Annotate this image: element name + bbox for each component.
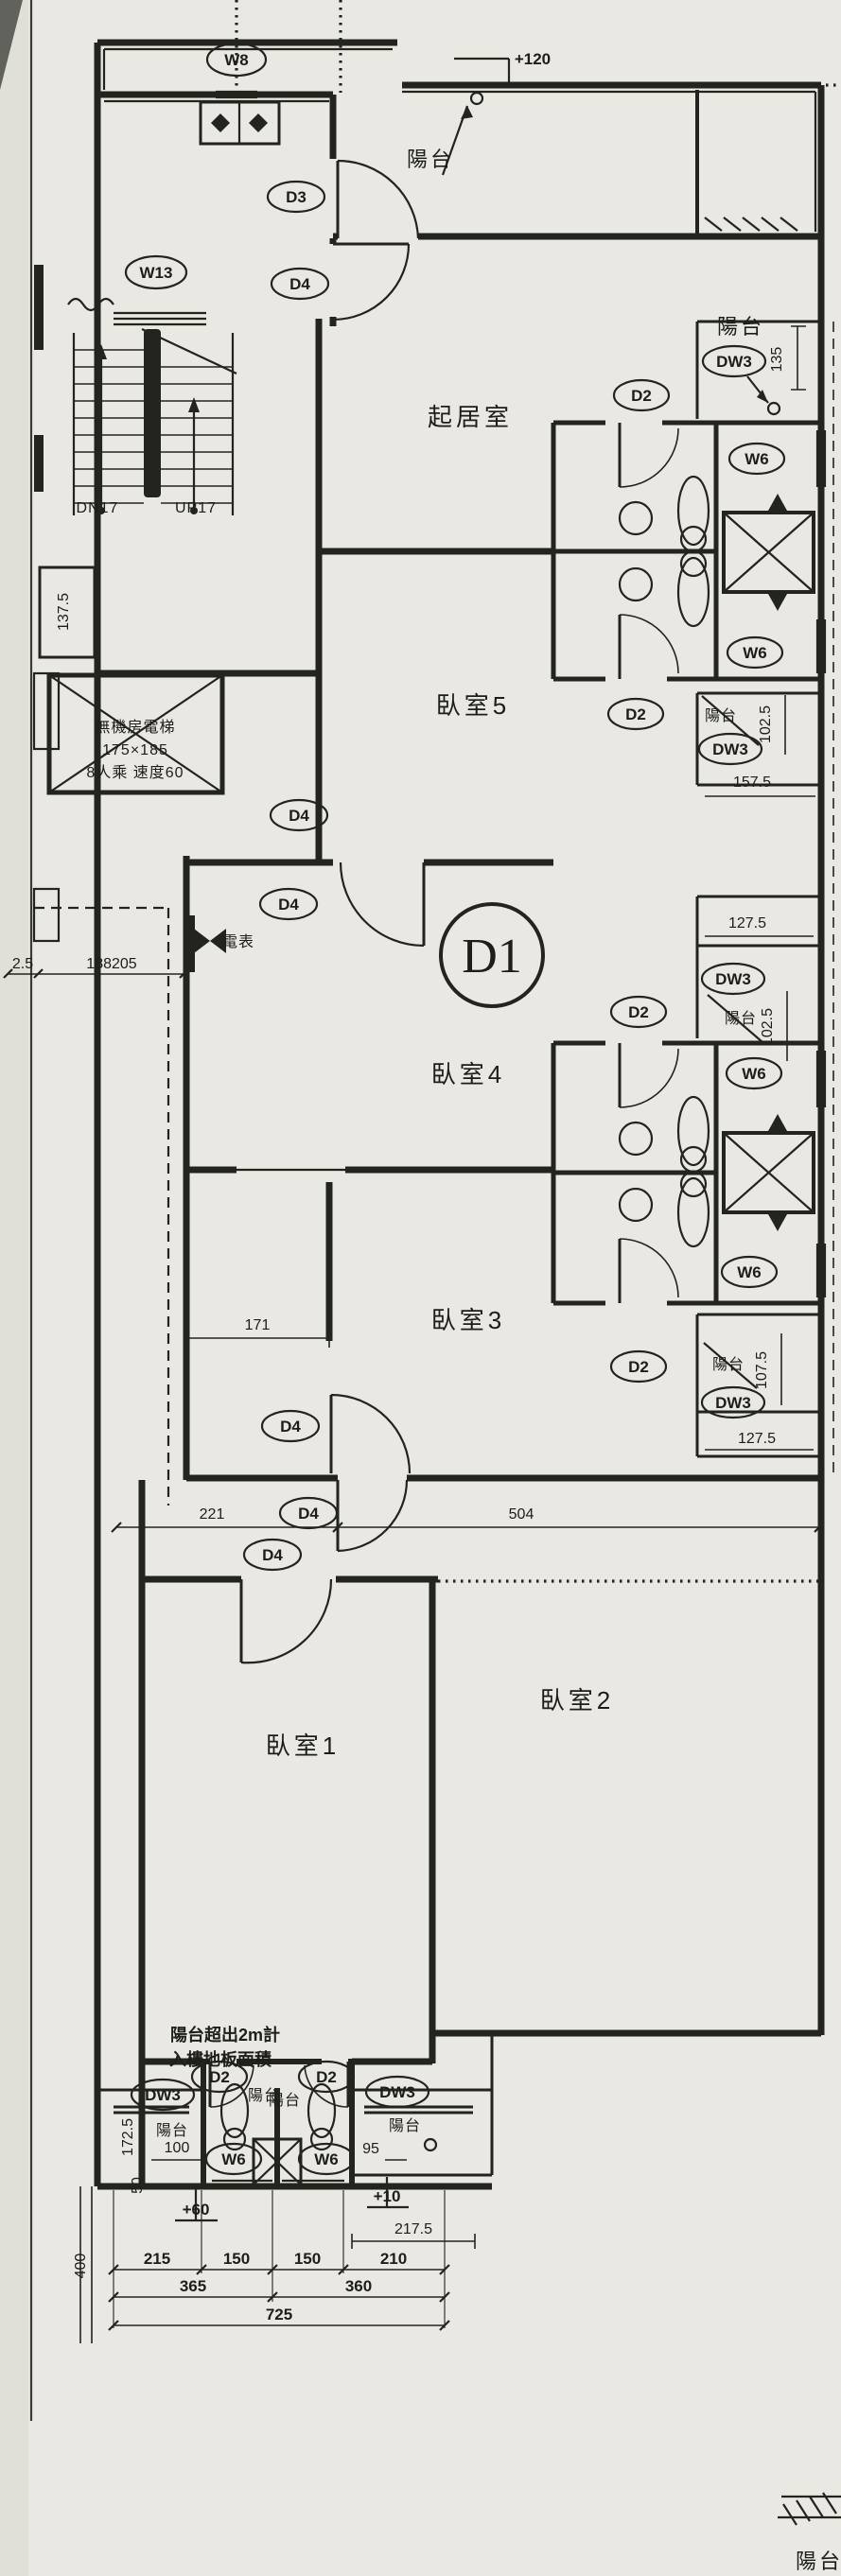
wall-mark: [34, 265, 44, 350]
svg-text:DW3: DW3: [712, 740, 748, 758]
dim-725: 725: [266, 2306, 292, 2324]
dim-365: 365: [180, 2277, 206, 2295]
label-bed4: 臥室4: [431, 1060, 505, 1088]
dim-360: 360: [345, 2277, 372, 2295]
dim-504: 504: [509, 1506, 534, 1523]
svg-text:D2: D2: [631, 387, 652, 405]
paper-left-margin: [0, 0, 28, 2576]
level-top: +120: [515, 50, 551, 68]
stair-rail: [144, 329, 161, 497]
dim-102-5-b2: 102.5: [758, 705, 774, 743]
note-line2: 入樓地板面積: [169, 2049, 272, 2069]
elevator-line2: 175×185: [102, 742, 168, 758]
floorplan-page: W8 D3 D4 W13 D2 DW3 W6 W6 D2 DW3 D4 D4 D…: [0, 0, 841, 2576]
label-balcony-1: 陽台: [717, 315, 764, 339]
dim-215: 215: [144, 2250, 170, 2268]
svg-text:W13: W13: [140, 264, 173, 282]
svg-text:W6: W6: [737, 1263, 762, 1281]
dim-127-5-b: 127.5: [738, 1431, 776, 1447]
level-left: +60: [183, 2201, 210, 2219]
label-stair-down: DN17: [77, 500, 119, 516]
svg-text:D4: D4: [262, 1546, 283, 1564]
label-bed5: 臥室5: [436, 691, 510, 720]
dim-107-5: 107.5: [754, 1351, 770, 1389]
elevator-line1: 無機房電梯: [95, 719, 175, 736]
svg-text:DW3: DW3: [145, 2086, 181, 2104]
svg-text:D4: D4: [298, 1505, 319, 1523]
wall-mark: [34, 435, 44, 492]
svg-text:DW3: DW3: [715, 970, 751, 988]
label-meter: 電表: [222, 933, 254, 950]
svg-text:DW3: DW3: [379, 2083, 415, 2101]
dim-127-5-a: 127.5: [728, 915, 766, 931]
label-balcony-4: 陽台: [712, 1356, 745, 1373]
label-balcony-top: 陽台: [407, 148, 454, 171]
svg-text:W6: W6: [742, 1065, 766, 1083]
dim-100: 100: [165, 2140, 190, 2156]
dim-135: 135: [769, 347, 785, 373]
label-balcony-fragment: 陽台: [796, 2550, 841, 2573]
svg-text:D2: D2: [628, 1358, 649, 1376]
label-balcony-br: 陽台: [389, 2117, 421, 2134]
note-line1: 陽台超出2m計: [170, 2025, 280, 2045]
dim-157-5: 157.5: [733, 775, 771, 791]
svg-text:W6: W6: [314, 2150, 339, 2168]
label-living: 起居室: [428, 403, 513, 431]
dim-102-5-b3: 102.5: [760, 1008, 776, 1046]
dim-2-5: 2.5: [12, 956, 33, 972]
meter-wall-stub: [185, 915, 195, 972]
svg-text:D4: D4: [280, 1418, 301, 1436]
dim-400: 400: [73, 2254, 89, 2279]
dim-137-5: 137.5: [56, 593, 72, 631]
svg-text:D2: D2: [209, 2068, 230, 2086]
dim-150b: 150: [294, 2250, 321, 2268]
dim-50: 50: [130, 2177, 146, 2194]
svg-text:D2: D2: [628, 1003, 649, 1021]
svg-text:D2: D2: [625, 705, 646, 723]
label-balcony-c2: 陽台: [269, 2092, 301, 2109]
label-stair-up: UP17: [175, 500, 217, 516]
dim-150a: 150: [223, 2250, 250, 2268]
label-balcony-bl: 陽台: [156, 2122, 188, 2139]
label-bed1: 臥室1: [266, 1732, 340, 1760]
svg-text:D4: D4: [289, 275, 310, 293]
svg-text:DW3: DW3: [716, 353, 752, 371]
dim-172-5: 172.5: [120, 2118, 136, 2156]
floorplan-drawing: W8 D3 D4 W13 D2 DW3 W6 W6 D2 DW3 D4 D4 D…: [0, 0, 841, 2576]
svg-text:D2: D2: [316, 2068, 337, 2086]
svg-text:D4: D4: [278, 896, 299, 914]
svg-text:D3: D3: [286, 188, 307, 206]
svg-text:W6: W6: [221, 2150, 246, 2168]
svg-text:DW3: DW3: [715, 1394, 751, 1412]
dim-217-5: 217.5: [394, 2221, 432, 2237]
label-balcony-2: 陽台: [705, 707, 737, 724]
dim-221: 221: [200, 1506, 225, 1523]
elevator-line3: 8人乘 速度60: [86, 764, 184, 781]
label-balcony-3: 陽台: [725, 1010, 757, 1027]
dim-188205: 188205: [86, 956, 136, 972]
level-right: +10: [374, 2187, 401, 2205]
dim-171: 171: [245, 1317, 271, 1333]
svg-text:D4: D4: [289, 807, 309, 825]
svg-text:W6: W6: [745, 450, 769, 468]
dim-95: 95: [362, 2141, 379, 2157]
dim-210: 210: [380, 2250, 407, 2268]
svg-text:W6: W6: [743, 644, 767, 662]
svg-text:W8: W8: [224, 51, 249, 69]
unit-id: D1: [462, 930, 522, 983]
label-bed3: 臥室3: [431, 1306, 505, 1334]
label-bed2: 臥室2: [540, 1686, 614, 1714]
